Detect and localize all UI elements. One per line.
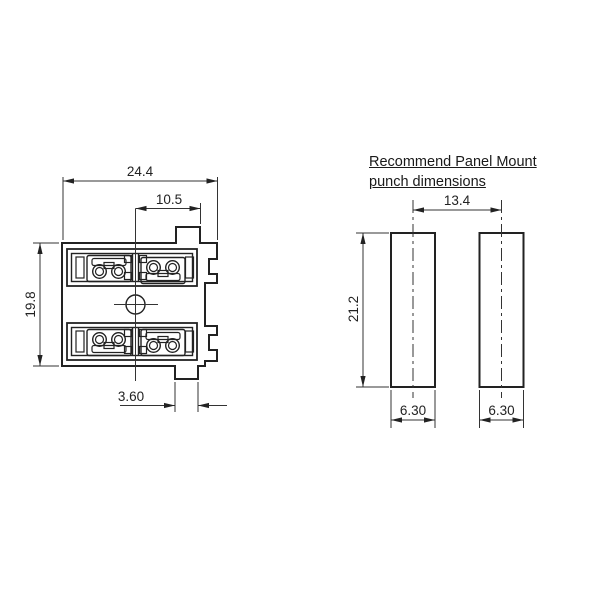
punch-view-title-line1: Recommend Panel Mount <box>369 152 537 172</box>
upper-left-key <box>76 257 84 278</box>
arrowhead <box>207 178 218 183</box>
arrowhead <box>480 417 491 422</box>
dim-label-right-slot-width: 6.30 <box>488 403 514 418</box>
dim-slot-length: 21.2 <box>346 233 389 387</box>
arrowhead <box>491 207 502 212</box>
dim-label-slot-length: 21.2 <box>346 296 361 322</box>
arrowhead <box>190 206 201 211</box>
arrowhead <box>424 417 435 422</box>
arrowhead <box>164 403 175 408</box>
dim-label-overall-width: 24.4 <box>127 164 154 179</box>
panel-punch-view: 13.4 21.2 6.30 <box>346 193 524 428</box>
dim-label-center-to-edge: 10.5 <box>156 192 182 207</box>
dim-overall-height: 19.8 <box>23 243 59 366</box>
upper-terminal-cavity <box>67 249 197 286</box>
arrowhead <box>198 403 209 408</box>
dim-label-overall-height: 19.8 <box>23 291 38 317</box>
punch-view-title: Recommend Panel Mount punch dimensions <box>369 152 537 192</box>
technical-drawing-svg: 24.4 10.5 19.8 <box>0 0 600 600</box>
dim-label-slot-spacing: 13.4 <box>444 193 471 208</box>
dim-slot-spacing: 13.4 <box>413 193 502 213</box>
terminal-upper-right <box>141 258 185 284</box>
arrowhead <box>37 243 42 254</box>
connector-front-view: 24.4 10.5 19.8 <box>23 164 227 412</box>
dim-center-to-edge: 10.5 <box>136 192 201 224</box>
arrowhead <box>63 178 74 183</box>
dim-overall-width: 24.4 <box>63 164 218 240</box>
arrowhead <box>136 206 147 211</box>
arrowhead <box>391 417 402 422</box>
punch-view-title-line2: punch dimensions <box>369 172 537 192</box>
lower-left-key <box>76 331 84 352</box>
dim-label-left-slot-width: 6.30 <box>400 403 426 418</box>
arrowhead <box>360 233 365 244</box>
arrowhead <box>513 417 524 422</box>
drawing-canvas: 24.4 10.5 19.8 <box>0 0 600 600</box>
terminal-lower-right <box>141 330 185 356</box>
arrowhead <box>360 376 365 387</box>
lower-terminal-cavity <box>67 323 197 360</box>
dim-label-tab-width: 3.60 <box>118 389 144 404</box>
arrowhead <box>413 207 424 212</box>
dim-tab-width: 3.60 <box>118 382 227 412</box>
arrowhead <box>37 355 42 366</box>
